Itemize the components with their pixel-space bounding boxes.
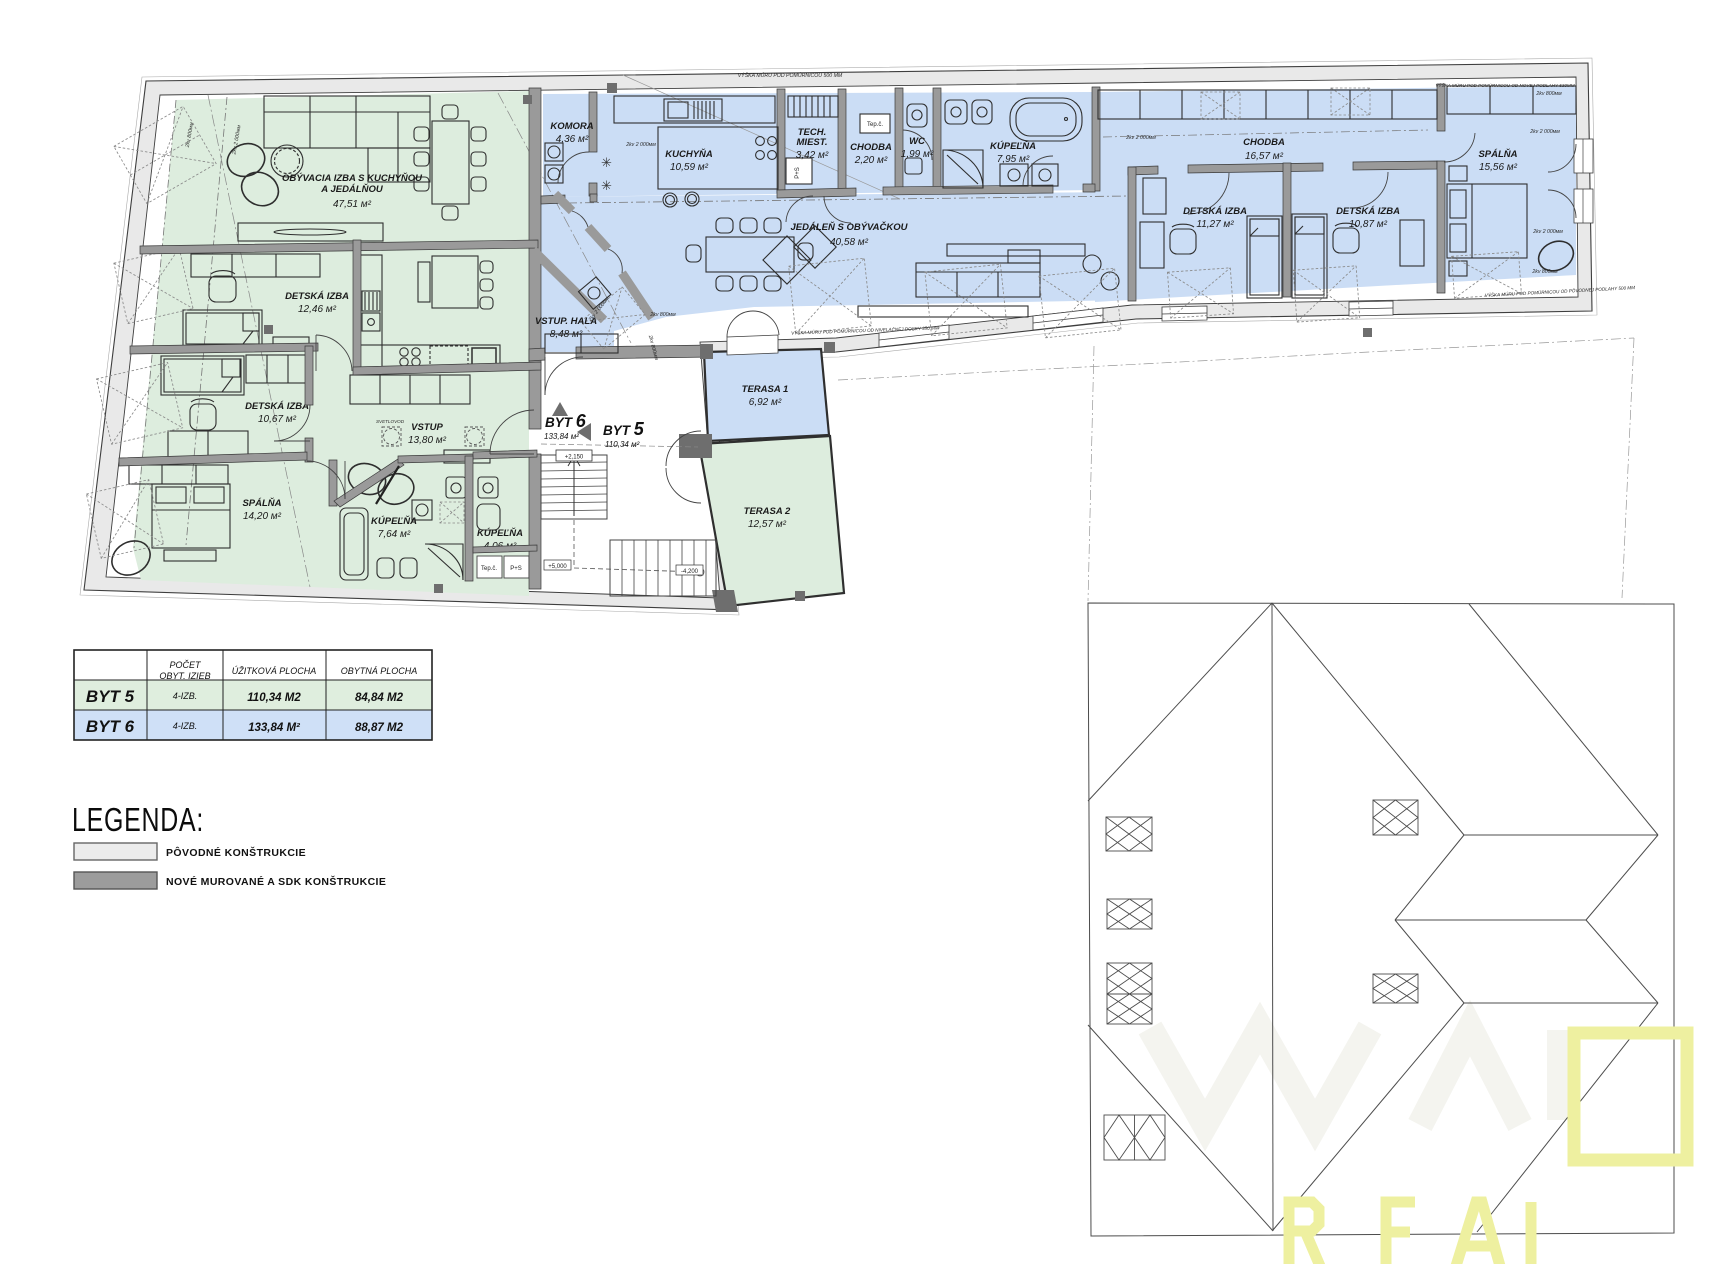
svg-text:MIEST.: MIEST. (797, 137, 828, 148)
svg-text:OBYTNÁ PLOCHA: OBYTNÁ PLOCHA (341, 666, 418, 676)
svg-text:KUCHYŇA: KUCHYŇA (665, 148, 713, 160)
svg-text:P+S: P+S (795, 167, 801, 179)
svg-text:3,42 м²: 3,42 м² (796, 150, 829, 161)
svg-text:WC: WC (909, 136, 925, 147)
svg-text:12,57 м²: 12,57 м² (748, 519, 787, 530)
svg-text:VSTUP: VSTUP (411, 422, 443, 433)
svg-text:DETSKÁ IZBA: DETSKÁ IZBA (245, 401, 309, 412)
svg-text:+5,000: +5,000 (548, 564, 567, 570)
svg-text:LEGENDA:: LEGENDA: (72, 801, 204, 838)
svg-text:11,27 м²: 11,27 м² (1196, 219, 1234, 230)
svg-text:2kv 800мм: 2kv 800мм (1531, 269, 1558, 275)
svg-text:110,34 M2: 110,34 M2 (247, 692, 301, 704)
svg-text:DETSKÁ IZBA: DETSKÁ IZBA (1183, 206, 1247, 217)
svg-text:2,20 м²: 2,20 м² (854, 155, 888, 166)
svg-text:2kv 2 000мм: 2kv 2 000мм (1532, 229, 1563, 235)
svg-text:✳: ✳ (601, 155, 612, 170)
svg-text:SVETLOVOD: SVETLOVOD (376, 419, 405, 424)
svg-text:KÚPEĽŇA: KÚPEĽŇA (990, 140, 1036, 152)
svg-text:10,87 м²: 10,87 м² (1349, 219, 1388, 230)
svg-text:133,84 м²: 133,84 м² (544, 432, 579, 441)
svg-text:VÝŠKA MÚRU POD POMÚRNICOU 500: VÝŠKA MÚRU POD POMÚRNICOU 500 MM (738, 72, 843, 79)
svg-text:4-IZB.: 4-IZB. (173, 691, 198, 701)
svg-text:✳: ✳ (601, 178, 612, 193)
svg-text:2kv 800мм: 2kv 800мм (1535, 91, 1562, 97)
svg-text:PÔVODNÉ KONŠTRUKCIE: PÔVODNÉ KONŠTRUKCIE (166, 846, 306, 859)
svg-text:10,67 м²: 10,67 м² (258, 414, 297, 425)
svg-text:2kv 2 000мм: 2kv 2 000мм (1529, 129, 1560, 135)
svg-text:POČET: POČET (169, 660, 202, 670)
svg-text:Tep.č.: Tep.č. (481, 566, 497, 572)
svg-text:6,92 м²: 6,92 м² (749, 397, 782, 408)
svg-text:P+S: P+S (510, 566, 522, 572)
svg-text:14,20 м²: 14,20 м² (243, 511, 282, 522)
svg-text:OBÝVACIA IZBA S KUCHYŇOU: OBÝVACIA IZBA S KUCHYŇOU (282, 172, 423, 184)
svg-text:CHODBA: CHODBA (1243, 137, 1285, 148)
svg-text:2kv 800мм: 2kv 800мм (649, 312, 676, 318)
svg-text:A JEDÁLŇOU: A JEDÁLŇOU (320, 183, 384, 195)
svg-text:4,36 м²: 4,36 м² (556, 134, 589, 145)
svg-text:SPÁLŇA: SPÁLŇA (242, 497, 281, 509)
svg-text:133,84 М²: 133,84 М² (248, 722, 301, 734)
svg-text:84,84 M2: 84,84 M2 (355, 692, 404, 704)
svg-text:2kv 2 000мм: 2kv 2 000мм (625, 142, 656, 148)
svg-text:JEDÁLEŇ S OBÝVAČKOU: JEDÁLEŇ S OBÝVAČKOU (790, 221, 908, 233)
svg-text:15,56 м²: 15,56 м² (1479, 162, 1518, 173)
svg-text:KÚPEĽŇA: KÚPEĽŇA (477, 527, 523, 539)
svg-text:BYT 6: BYT 6 (86, 717, 135, 736)
svg-text:OBYT. IZIEB: OBYT. IZIEB (159, 671, 210, 681)
svg-text:+2,150: +2,150 (565, 455, 584, 461)
svg-text:ÚŽITKOVÁ PLOCHA: ÚŽITKOVÁ PLOCHA (232, 666, 317, 676)
svg-text:KÚPEĽŇA: KÚPEĽŇA (371, 515, 417, 527)
svg-text:1,99 м²: 1,99 м² (901, 149, 934, 160)
svg-text:TERASA 2: TERASA 2 (744, 506, 791, 517)
svg-text:BYT 5: BYT 5 (86, 687, 135, 706)
svg-text:SPÁLŇA: SPÁLŇA (1478, 148, 1517, 160)
svg-text:16,57 м²: 16,57 м² (1245, 151, 1284, 162)
svg-text:4-IZB.: 4-IZB. (173, 721, 198, 731)
svg-text:-4,200: -4,200 (681, 569, 699, 575)
svg-text:40,58 м²: 40,58 м² (830, 237, 869, 248)
svg-text:12,46 м²: 12,46 м² (298, 304, 337, 315)
svg-text:KOMORA: KOMORA (550, 121, 593, 132)
svg-text:47,51 м²: 47,51 м² (333, 199, 372, 210)
svg-text:7,95 м²: 7,95 м² (997, 154, 1030, 165)
svg-text:TERASA 1: TERASA 1 (742, 384, 789, 395)
svg-text:8,48 м²: 8,48 м² (550, 329, 583, 340)
svg-text:VÝŠKA MÚRU POD POMÚRNICOU OD N: VÝŠKA MÚRU POD POMÚRNICOU OD NOVEJ PODLA… (1435, 82, 1574, 88)
svg-text:7,64 м²: 7,64 м² (378, 529, 411, 540)
svg-text:NOVÉ MUROVANÉ A SDK KONŠTRUKCI: NOVÉ MUROVANÉ A SDK KONŠTRUKCIE (166, 875, 386, 888)
svg-text:88,87 M2: 88,87 M2 (355, 722, 404, 734)
svg-text:13,80 м²: 13,80 м² (408, 435, 447, 446)
svg-text:110,34 м²: 110,34 м² (605, 440, 640, 449)
svg-text:DETSKÁ IZBA: DETSKÁ IZBA (285, 291, 349, 302)
svg-text:Tep.č.: Tep.č. (867, 122, 883, 128)
svg-text:CHODBA: CHODBA (850, 142, 892, 153)
svg-text:2kv 2 000мм: 2kv 2 000мм (1125, 135, 1156, 141)
svg-text:DETSKÁ IZBA: DETSKÁ IZBA (1336, 206, 1400, 217)
svg-text:10,59 м²: 10,59 м² (670, 162, 709, 173)
